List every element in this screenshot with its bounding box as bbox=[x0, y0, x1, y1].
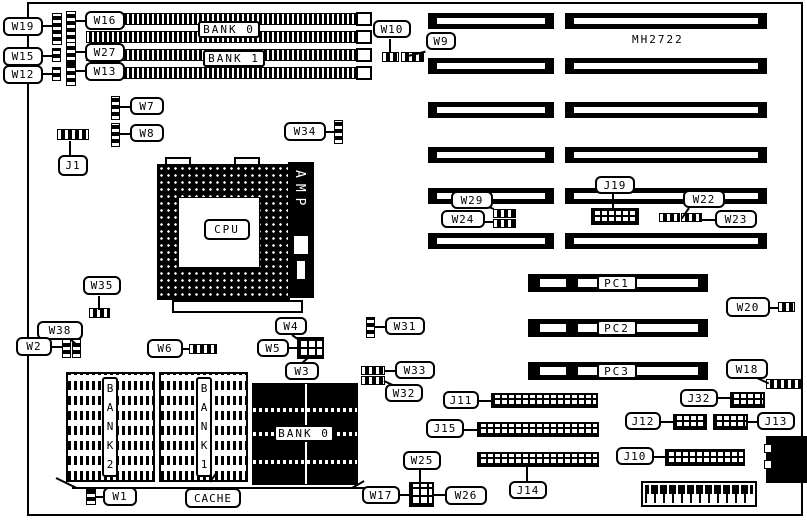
isa-slot-2-short bbox=[428, 58, 554, 74]
callout-w7: W7 bbox=[130, 97, 164, 115]
pointer-line bbox=[478, 400, 492, 402]
board-model-text: MH2722 bbox=[632, 33, 696, 46]
simm-socket-4 bbox=[86, 67, 356, 79]
simm-latch bbox=[356, 66, 372, 80]
callout-w33: W33 bbox=[395, 361, 435, 379]
callout-w15: W15 bbox=[3, 47, 43, 66]
pointer-line bbox=[288, 347, 298, 349]
header-j10 bbox=[665, 449, 745, 466]
amp-keying-box bbox=[294, 258, 308, 282]
pci-slot-3-label: PC3 bbox=[597, 363, 637, 379]
jumper-w7 bbox=[111, 96, 120, 120]
jumper-block-w3-w4-w5 bbox=[297, 337, 324, 359]
callout-w22: W22 bbox=[683, 190, 725, 208]
isa-slot-4-long bbox=[565, 147, 767, 163]
header-j12 bbox=[673, 414, 707, 430]
cpu-socket-lever bbox=[172, 300, 303, 313]
isa-slot-4-short bbox=[428, 147, 554, 163]
callout-cache: CACHE bbox=[185, 488, 241, 508]
header-j11 bbox=[491, 393, 598, 408]
jumper-w13 bbox=[66, 64, 76, 86]
isa-slot-2-long bbox=[565, 58, 767, 74]
callout-w1: W1 bbox=[103, 487, 137, 506]
callout-j32: J32 bbox=[680, 389, 718, 407]
jumper-w20 bbox=[778, 302, 795, 312]
callout-w31: W31 bbox=[385, 317, 425, 335]
callout-w9: W9 bbox=[426, 32, 456, 50]
callout-w10: W10 bbox=[373, 20, 411, 38]
simm-latch bbox=[356, 30, 372, 44]
jumper-w33 bbox=[361, 366, 385, 375]
callout-w5: W5 bbox=[257, 339, 289, 357]
callout-w26: W26 bbox=[445, 486, 487, 505]
jumper-w24 bbox=[493, 219, 516, 228]
callout-w12: W12 bbox=[3, 65, 43, 84]
isa-slot-3-short bbox=[428, 102, 554, 118]
isa-slot-6-short bbox=[428, 233, 554, 249]
callout-w19: W19 bbox=[3, 17, 43, 36]
pci-slot-2-label: PC2 bbox=[597, 320, 637, 336]
callout-j19: J19 bbox=[595, 176, 635, 194]
jumper-w8 bbox=[111, 123, 120, 147]
jumper-w19 bbox=[52, 13, 62, 45]
pointer-line bbox=[463, 429, 478, 431]
header-j13 bbox=[713, 414, 748, 430]
jumper-w10 bbox=[382, 52, 399, 62]
jumper-w6 bbox=[189, 344, 217, 354]
callout-w23: W23 bbox=[715, 210, 757, 228]
callout-w29: W29 bbox=[451, 191, 493, 209]
simm-latch bbox=[356, 48, 372, 62]
pointer-line bbox=[701, 219, 716, 221]
callout-w32: W32 bbox=[385, 384, 423, 402]
bank1-top-label: BANK 1 bbox=[203, 50, 265, 67]
callout-w8: W8 bbox=[130, 124, 164, 142]
pointer-line bbox=[419, 470, 421, 483]
pointer-line bbox=[389, 39, 391, 53]
amp-keying-box bbox=[294, 236, 308, 254]
isa-slot-3-long bbox=[565, 102, 767, 118]
isa-slot-1-short bbox=[428, 13, 554, 29]
amp-label: AMP bbox=[292, 170, 307, 211]
callout-w2: W2 bbox=[16, 337, 52, 356]
jumper-w29 bbox=[493, 209, 516, 218]
jumper-w18 bbox=[766, 379, 801, 389]
isa-slot-6-long bbox=[565, 233, 767, 249]
amp-connector: AMP bbox=[288, 162, 314, 298]
pointer-line bbox=[98, 296, 100, 310]
pointer-line bbox=[484, 221, 494, 223]
callout-j13: J13 bbox=[757, 412, 795, 430]
pointer-line bbox=[612, 194, 614, 210]
callout-w35: W35 bbox=[83, 276, 121, 295]
jumper-w32 bbox=[361, 376, 385, 385]
motherboard-diagram: BANK 0 BANK 1 W19 W16 W15 W27 W12 W13 W1… bbox=[0, 0, 807, 520]
header-j15 bbox=[477, 422, 599, 437]
at-power-connector bbox=[641, 481, 757, 507]
callout-w18: W18 bbox=[726, 359, 768, 379]
callout-j12: J12 bbox=[625, 412, 661, 430]
callout-w17: W17 bbox=[362, 486, 400, 504]
callout-w13: W13 bbox=[85, 62, 125, 81]
callout-w27: W27 bbox=[85, 43, 125, 62]
jumper-j1 bbox=[57, 129, 89, 140]
jumper-w34 bbox=[334, 120, 343, 144]
jumper-w16 bbox=[66, 11, 76, 43]
jumper-block-w17-w25-w26 bbox=[409, 482, 434, 507]
bank1-vertical-label: BANK1 bbox=[196, 377, 212, 477]
header-j19 bbox=[591, 208, 639, 225]
callout-w25: W25 bbox=[403, 451, 441, 470]
simm-latch bbox=[356, 12, 372, 26]
keyboard-connector-notch bbox=[764, 444, 772, 453]
pointer-line bbox=[51, 346, 63, 348]
pointer-line bbox=[717, 397, 731, 399]
callout-w4: W4 bbox=[275, 317, 307, 335]
header-j14 bbox=[477, 452, 599, 467]
callout-w34: W34 bbox=[284, 122, 326, 141]
keyboard-connector-notch bbox=[764, 460, 772, 469]
callout-j11: J11 bbox=[443, 391, 479, 409]
jumper-w22 bbox=[659, 213, 680, 222]
pointer-line bbox=[182, 348, 190, 350]
pointer-line bbox=[653, 456, 666, 458]
isa-slot-1-long bbox=[565, 13, 767, 29]
jumper-w15 bbox=[52, 48, 61, 62]
callout-w24: W24 bbox=[441, 210, 485, 228]
callout-w6: W6 bbox=[147, 339, 183, 358]
header-j32 bbox=[730, 392, 765, 408]
pointer-line bbox=[769, 307, 779, 309]
callout-j14: J14 bbox=[509, 481, 547, 499]
callout-j15: J15 bbox=[426, 419, 464, 438]
callout-w20: W20 bbox=[726, 297, 770, 317]
bank2-vertical-label: BANK2 bbox=[102, 377, 118, 477]
jumper-w12 bbox=[52, 67, 61, 81]
callout-j1: J1 bbox=[58, 155, 88, 176]
keyboard-connector bbox=[766, 436, 807, 483]
pointer-line bbox=[399, 494, 410, 496]
bank0-bottom-label: BANK 0 bbox=[274, 425, 334, 442]
callout-j10: J10 bbox=[616, 447, 654, 465]
callout-w16: W16 bbox=[85, 11, 125, 30]
pointer-line bbox=[660, 421, 674, 423]
pci-slot-1-label: PC1 bbox=[597, 275, 637, 291]
cpu-label: CPU bbox=[204, 219, 250, 240]
bank0-top-label: BANK 0 bbox=[198, 21, 260, 38]
callout-w3: W3 bbox=[285, 362, 319, 380]
